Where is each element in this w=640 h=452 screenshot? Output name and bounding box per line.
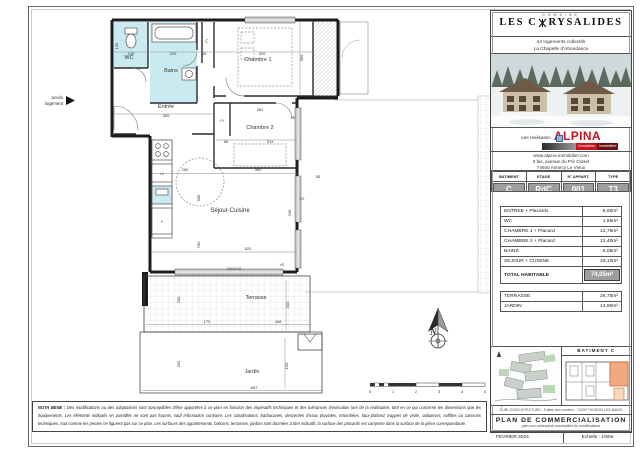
compass-n-label: N [429, 327, 437, 337]
alpina-brand: ALPINA [554, 131, 601, 142]
dim-label: 239 [287, 209, 292, 216]
floor-plan: accès logement N WCBainsChambre 1PlEntré… [30, 8, 490, 448]
dim-label: 311 [267, 139, 274, 144]
access-label-1: accès [52, 95, 64, 100]
room-label: Pl [205, 39, 209, 42]
dim-label: 300 [285, 301, 290, 308]
key-plans: BATIMENT C [491, 346, 631, 406]
drawing-sheet: accès logement N WCBainsChambre 1PlEntré… [0, 0, 640, 452]
dim-label: 135 [114, 42, 119, 49]
dim-label: 200 [176, 296, 181, 303]
room-label: Jardin [245, 369, 260, 375]
dim-label: 65 [224, 139, 229, 144]
dim-label: 150 [284, 362, 289, 369]
scale-tick-label: 0 [369, 389, 372, 394]
access-arrow-icon [66, 96, 75, 105]
neighbour-strip [478, 96, 490, 293]
dim-label: 55 [316, 174, 321, 179]
room-label: Chambre 2 [246, 125, 273, 131]
title-block: DOMAINE LES C RYSALIDES 44 logements col… [490, 10, 632, 433]
dim-label: 520 [245, 246, 252, 251]
plan-date: FEVRIER 2024 [491, 435, 563, 440]
dim-label: 667 [251, 385, 258, 390]
room-label: Séjour-Cuisine [210, 208, 250, 214]
dim-label: 65 [202, 51, 207, 56]
site-key-plan [491, 347, 562, 405]
scale-tick-label: 5 [484, 389, 487, 394]
project-photo [491, 54, 631, 128]
scale-tick-label: 4 [461, 389, 464, 394]
room-label: Bains [164, 68, 178, 74]
terrace-wall [142, 272, 148, 306]
dim-label: 320 [259, 51, 266, 56]
dim-label: 360 [255, 167, 262, 172]
dim-label: 905 [196, 194, 201, 201]
highlighted-unit [610, 362, 628, 386]
dim-label: 130 [128, 51, 135, 56]
dim-label: 295 [176, 360, 181, 367]
alpina-conception-label: Conception [576, 143, 597, 150]
dim-label: 260 [182, 167, 189, 172]
dim-label: 210 [170, 51, 177, 56]
annotation-label: VS [280, 263, 285, 267]
alpina-blue-square-icon [556, 135, 563, 142]
building-key-plan: BATIMENT C [562, 347, 632, 405]
access-label-2: logement [45, 101, 64, 106]
annotation-label: VR [291, 116, 296, 120]
dim-label: 170 [204, 319, 211, 324]
nota-bene-line1: Des modifications ou des adaptations son… [67, 405, 474, 410]
scale-tick-label: 1 [392, 389, 395, 394]
dim-label: 300 [163, 113, 170, 118]
annotation-label: VS [300, 197, 305, 201]
annotation-label: 290X215 [227, 267, 241, 271]
shaft [313, 20, 338, 96]
scale-tick-label: 2 [415, 389, 418, 394]
dim-label: 381 [257, 107, 264, 112]
alpina-logo: une réalisation ALPINA Conception Immobi… [491, 128, 631, 152]
alpina-bar-icon [542, 143, 576, 150]
plan-scale: Echelle : 1/50e [563, 432, 631, 443]
dim-label: 408 [275, 319, 282, 324]
north-compass-icon: N [428, 308, 448, 348]
room-label: Entrée [158, 104, 174, 110]
signature [499, 406, 539, 409]
neighbour-entry [340, 22, 368, 94]
nota-bene-label: NOTA BENE : [38, 405, 65, 410]
architect-line: EURL D'ARCHITECTURE - 5 allée des moulin… [491, 406, 631, 415]
alpina-immobiliere-label: Immobilière [597, 143, 619, 150]
scale-bar [370, 383, 485, 387]
annotation-label: LV [160, 172, 165, 176]
dim-label: 300 [299, 54, 304, 61]
room-label: Chambre 1 [244, 57, 271, 63]
nota-bene: NOTA BENE : Des modifications ou des ada… [32, 401, 487, 432]
nota-bene-line3: techniques, tout comme les pentes ne fig… [38, 421, 466, 426]
realisation-label: une réalisation [521, 135, 551, 142]
room-label: Pl [220, 119, 223, 123]
room-label: Terrasse [245, 295, 266, 301]
key-plan-title: BATIMENT C [562, 347, 632, 356]
scale-tick-label: 3 [438, 389, 441, 394]
dim-label: 700 [196, 241, 201, 248]
